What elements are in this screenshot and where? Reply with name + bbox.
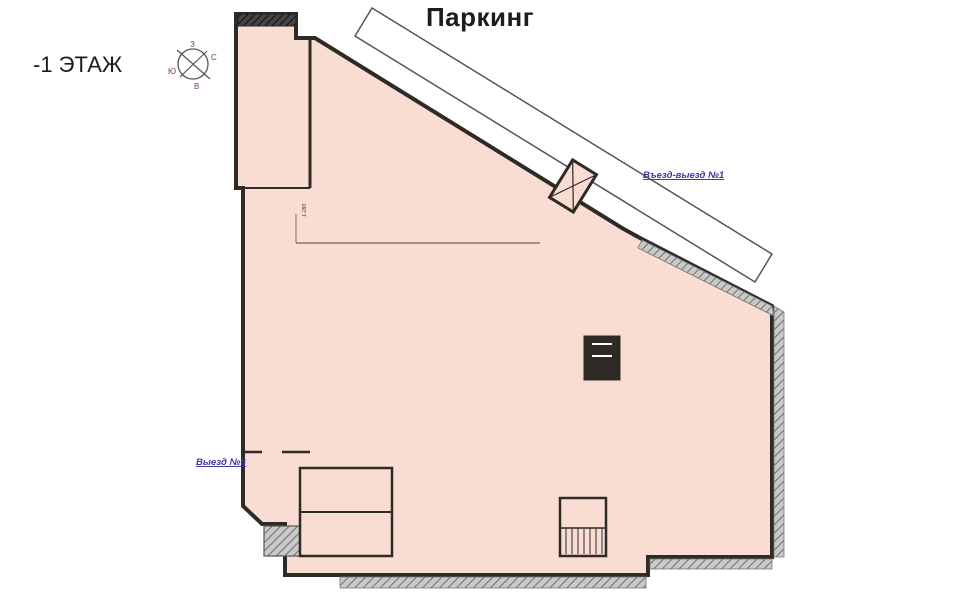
exit-6-label: Выезд №6	[196, 457, 246, 468]
stall-number: 1-280	[302, 204, 308, 217]
entry-exit-1-label: Въезд-выезд №1	[643, 170, 724, 181]
plan-drawing: OFFICE НАВИГАТОР NAVI	[0, 0, 975, 597]
compass-west-letter: З	[190, 40, 195, 49]
compass-south-letter: Ю	[168, 67, 176, 76]
compass-icon: З С В Ю	[168, 40, 217, 91]
compass-north-letter: С	[211, 53, 217, 62]
compass-east-letter: В	[194, 82, 199, 91]
floor-plan-canvas: Паркинг -1 ЭТАЖ OFFICE НАВИГАТОР NAVI	[0, 0, 975, 597]
